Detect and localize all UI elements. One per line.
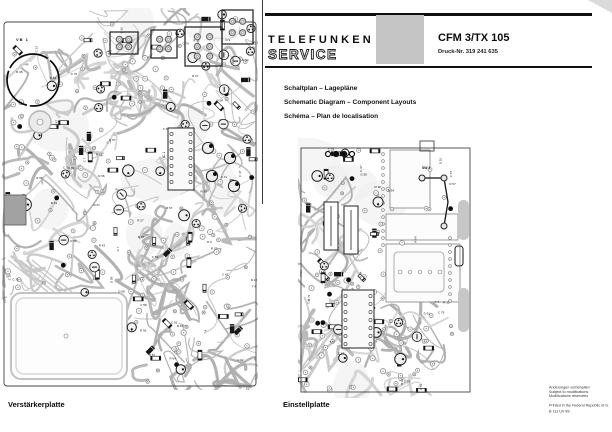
svg-text:SW 1: SW 1	[422, 166, 430, 170]
brand-service-wordmark: SERVICE	[267, 46, 377, 64]
svg-text:R 58: R 58	[231, 57, 235, 64]
svg-text:C 7: C 7	[63, 165, 68, 169]
svg-text:D 58: D 58	[70, 239, 77, 243]
svg-text:R 38: R 38	[16, 70, 23, 74]
svg-text:C 58: C 58	[140, 303, 147, 307]
footer-printed-in: Printed in the Federal Republic of G.	[549, 404, 612, 408]
svg-text:C 47: C 47	[54, 120, 58, 127]
svg-text:C 7: C 7	[116, 246, 120, 251]
svg-text:VB 1: VB 1	[16, 37, 29, 42]
adjustment-board-layout: D 52R 64R 12C 23C 71D 51T 4D 52R 56R 64C…	[298, 138, 474, 398]
svg-text:R 43: R 43	[51, 201, 58, 205]
svg-text:R 58: R 58	[36, 176, 43, 180]
svg-text:T 4: T 4	[203, 329, 207, 334]
amplifier-board-layout: R 57R 58R 38C 7R 64C 67R 57D 58R 57R 57C…	[2, 8, 258, 390]
svg-text:R 57: R 57	[109, 138, 116, 142]
svg-text:R 57: R 57	[137, 218, 144, 222]
svg-text:D 9: D 9	[226, 38, 231, 42]
svg-text:D 51: D 51	[419, 383, 423, 390]
svg-text:C 23: C 23	[35, 46, 39, 53]
svg-text:D 9: D 9	[307, 299, 311, 304]
page-fold-divider	[262, 0, 263, 204]
header-gray-square	[376, 15, 424, 64]
svg-text:C 55: C 55	[7, 274, 11, 281]
footer-notes: Änderungen vorbehalten Subject to modifi…	[549, 386, 612, 415]
svg-text:R 38: R 38	[375, 185, 382, 189]
title-french: Schéma – Plan de localisation	[284, 110, 416, 124]
svg-text:D 52: D 52	[439, 158, 443, 165]
svg-text:C 79: C 79	[404, 379, 411, 383]
svg-text:D 58: D 58	[109, 276, 113, 283]
print-number: Druck-Nr. 319 241 635	[438, 49, 498, 55]
svg-text:R 49: R 49	[177, 324, 184, 328]
svg-text:D 58: D 58	[118, 290, 125, 294]
header-bottom-rule	[265, 66, 592, 69]
brand-name: TELEFUNKEN	[268, 34, 374, 46]
svg-text:R 58: R 58	[217, 99, 224, 103]
svg-text:R 57: R 57	[166, 206, 173, 210]
svg-text:R 57: R 57	[449, 182, 456, 186]
svg-text:D 51: D 51	[424, 312, 431, 316]
header-top-rule	[265, 13, 592, 16]
svg-text:R 12: R 12	[96, 152, 103, 156]
title-english: Schematic Diagram – Component Layouts	[284, 96, 416, 110]
svg-text:R 56: R 56	[140, 329, 147, 333]
caption-adjustment-board: Einstellplatte	[283, 400, 330, 409]
svg-text:T 4: T 4	[435, 300, 440, 304]
svg-text:R 38: R 38	[200, 189, 207, 193]
svg-text:IC 1: IC 1	[162, 152, 166, 158]
svg-text:C 37: C 37	[238, 170, 242, 177]
svg-text:D 9: D 9	[207, 240, 212, 244]
svg-text:R 64: R 64	[242, 58, 249, 62]
svg-text:C 71: C 71	[221, 175, 228, 179]
svg-text:C 67: C 67	[338, 351, 345, 355]
svg-text:R 27: R 27	[94, 203, 101, 207]
brand-service-text: SERVICE	[268, 47, 338, 62]
svg-text:C 79: C 79	[182, 41, 189, 45]
svg-text:R 64: R 64	[358, 271, 362, 278]
page-corner-shade	[588, 0, 612, 13]
svg-text:R 12: R 12	[443, 300, 450, 304]
svg-text:D 58: D 58	[361, 172, 368, 176]
svg-text:R 27: R 27	[192, 74, 199, 78]
model-number: CFM 3/TX 105	[438, 32, 558, 44]
svg-text:T 4: T 4	[252, 285, 257, 289]
svg-text:C 67: C 67	[449, 171, 453, 178]
svg-text:C 67: C 67	[138, 235, 145, 239]
svg-text:R 66: R 66	[68, 166, 75, 170]
svg-text:C 71: C 71	[12, 278, 19, 282]
svg-text:R 64: R 64	[170, 356, 177, 360]
svg-text:C 79: C 79	[71, 72, 78, 76]
svg-text:C 62: C 62	[237, 358, 244, 362]
svg-text:R 57: R 57	[149, 353, 156, 357]
footer-code: B 111 UV 89	[549, 410, 612, 414]
title-german: Schaltplan – Lagepläne	[284, 82, 416, 96]
svg-text:C 47: C 47	[222, 272, 229, 276]
svg-text:R 66: R 66	[98, 174, 105, 178]
svg-text:R 43: R 43	[99, 244, 106, 248]
svg-text:D 51: D 51	[50, 76, 57, 80]
svg-text:C 79: C 79	[438, 311, 445, 315]
svg-text:C 37: C 37	[359, 165, 363, 172]
svg-text:R 57: R 57	[211, 247, 218, 251]
document-titles: Schaltplan – Lagepläne Schematic Diagram…	[284, 82, 416, 124]
svg-text:C 55: C 55	[152, 255, 159, 259]
svg-text:T 2: T 2	[330, 340, 335, 344]
svg-text:C 7: C 7	[83, 157, 87, 162]
svg-text:R 64: R 64	[388, 189, 395, 193]
svg-text:C 62: C 62	[171, 321, 178, 325]
caption-amplifier-board: Verstärkerplatte	[8, 400, 65, 409]
svg-text:R 64: R 64	[414, 236, 418, 243]
